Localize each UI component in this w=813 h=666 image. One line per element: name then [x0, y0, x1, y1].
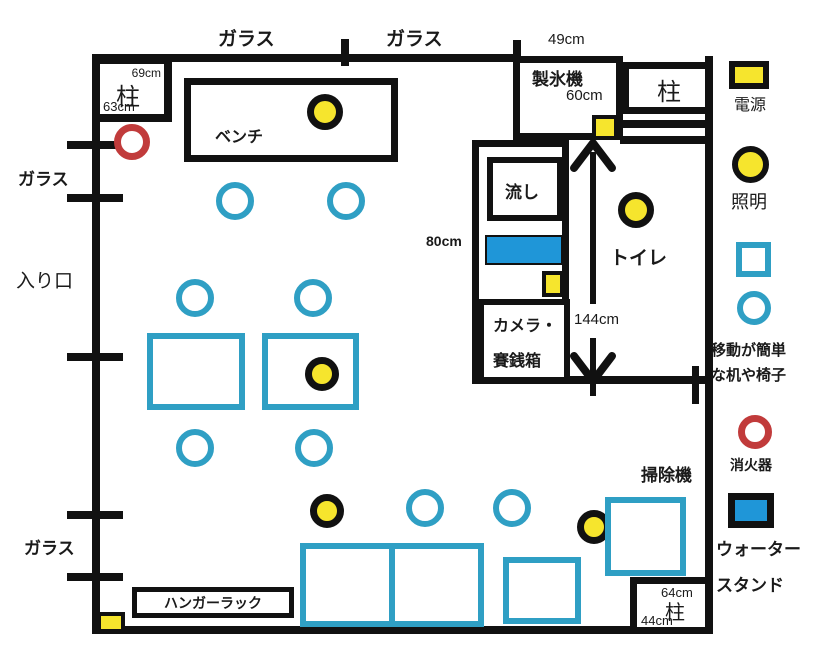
sink: 流し — [487, 157, 563, 221]
camera-box-label-2: 賽銭箱 — [493, 347, 541, 371]
light-marker-table — [305, 357, 339, 391]
table-1 — [147, 333, 245, 410]
legend-light-icon — [732, 146, 769, 183]
fire-extinguisher-marker — [114, 124, 150, 160]
pillar-tl-dim-bottom: 63cm — [103, 99, 135, 114]
legend-water-stand-label-1: ウォーター — [716, 535, 801, 560]
glass-label-top-2: ガラス — [386, 24, 443, 51]
pillar-top-right: 柱 — [622, 62, 712, 114]
dim-49cm: 49cm — [548, 31, 585, 48]
arrow-up-icon — [570, 140, 616, 170]
glass-label-left-upper: ガラス — [18, 165, 69, 190]
bench: ベンチ — [184, 78, 398, 162]
tick-left-5 — [67, 573, 123, 581]
ice-maker-dim: 60cm — [566, 87, 603, 104]
light-marker-bench — [307, 94, 343, 130]
legend-power-icon — [729, 61, 769, 89]
legend-light-label: 照明 — [731, 188, 767, 214]
entrance-label: 入り口 — [16, 266, 73, 293]
power-marker-kitchen — [542, 271, 564, 297]
chair-marker-1 — [216, 182, 254, 220]
vacuum-label: 掃除機 — [641, 461, 692, 486]
chair-marker-7 — [406, 489, 444, 527]
camera-box-label-1: カメラ・ — [493, 312, 557, 336]
pillar-bottom-right: 64cm 柱 44cm — [630, 577, 712, 634]
legend-movable-chair-icon — [737, 291, 771, 325]
dim-line-upper — [590, 152, 596, 304]
glass-label-top-1: ガラス — [218, 24, 275, 51]
pillar-tr-label: 柱 — [657, 72, 681, 107]
tick-left-4 — [67, 511, 123, 519]
chair-marker-3 — [176, 279, 214, 317]
legend-movable-label-2: な机や椅子 — [711, 364, 786, 385]
legend-movable-table-icon — [736, 242, 771, 277]
dim-144cm: 144cm — [574, 311, 619, 328]
tick-toilet-wall — [692, 366, 699, 404]
kitchen-block: 流し カメラ・ 賽銭箱 — [472, 140, 569, 384]
chair-marker-6 — [295, 429, 333, 467]
tick-left-3 — [67, 353, 123, 361]
vacuum-square — [605, 497, 686, 576]
table-double — [300, 543, 484, 627]
legend-water-stand-label-2: スタンド — [716, 571, 784, 596]
table-3 — [503, 557, 581, 624]
power-marker-ice-maker — [592, 115, 618, 140]
toilet-label: トイレ — [610, 243, 667, 270]
chair-marker-8 — [493, 489, 531, 527]
sink-label: 流し — [505, 178, 539, 203]
light-marker-bottom-1 — [310, 494, 344, 528]
floor-plan: ガラス ガラス 49cm ガラス 入り口 ガラス 69cm 柱 63cm ベンチ… — [0, 0, 813, 666]
chair-marker-4 — [294, 279, 332, 317]
legend-movable-label-1: 移動が簡単 — [711, 339, 786, 360]
bench-label: ベンチ — [215, 123, 263, 147]
wall-band-1 — [620, 120, 709, 128]
tick-left-2 — [67, 194, 123, 202]
legend-water-stand-icon — [728, 493, 774, 528]
arrow-down-icon — [570, 354, 616, 384]
legend-fire-extinguisher-icon — [738, 415, 772, 449]
power-marker-bottom-left — [97, 612, 125, 633]
chair-marker-5 — [176, 429, 214, 467]
legend-fire-extinguisher-label: 消火器 — [730, 455, 772, 475]
water-stand-marker — [485, 235, 563, 265]
hanger-rack: ハンガーラック — [132, 587, 294, 618]
tick-top-1 — [341, 39, 349, 66]
chair-marker-2 — [327, 182, 365, 220]
light-marker-toilet — [618, 192, 654, 228]
legend-power-label: 電源 — [734, 91, 766, 115]
camera-offering-box: カメラ・ 賽銭箱 — [478, 299, 570, 383]
dim-80cm: 80cm — [426, 233, 462, 249]
wall-band-2 — [620, 136, 709, 144]
table-double-divider — [389, 549, 395, 621]
wall-bottom — [92, 626, 713, 634]
hanger-rack-label: ハンガーラック — [164, 593, 262, 613]
glass-label-left-lower: ガラス — [24, 534, 75, 559]
pillar-br-dim-bottom: 44cm — [641, 613, 673, 628]
pillar-top-left: 69cm 柱 63cm — [92, 56, 172, 122]
